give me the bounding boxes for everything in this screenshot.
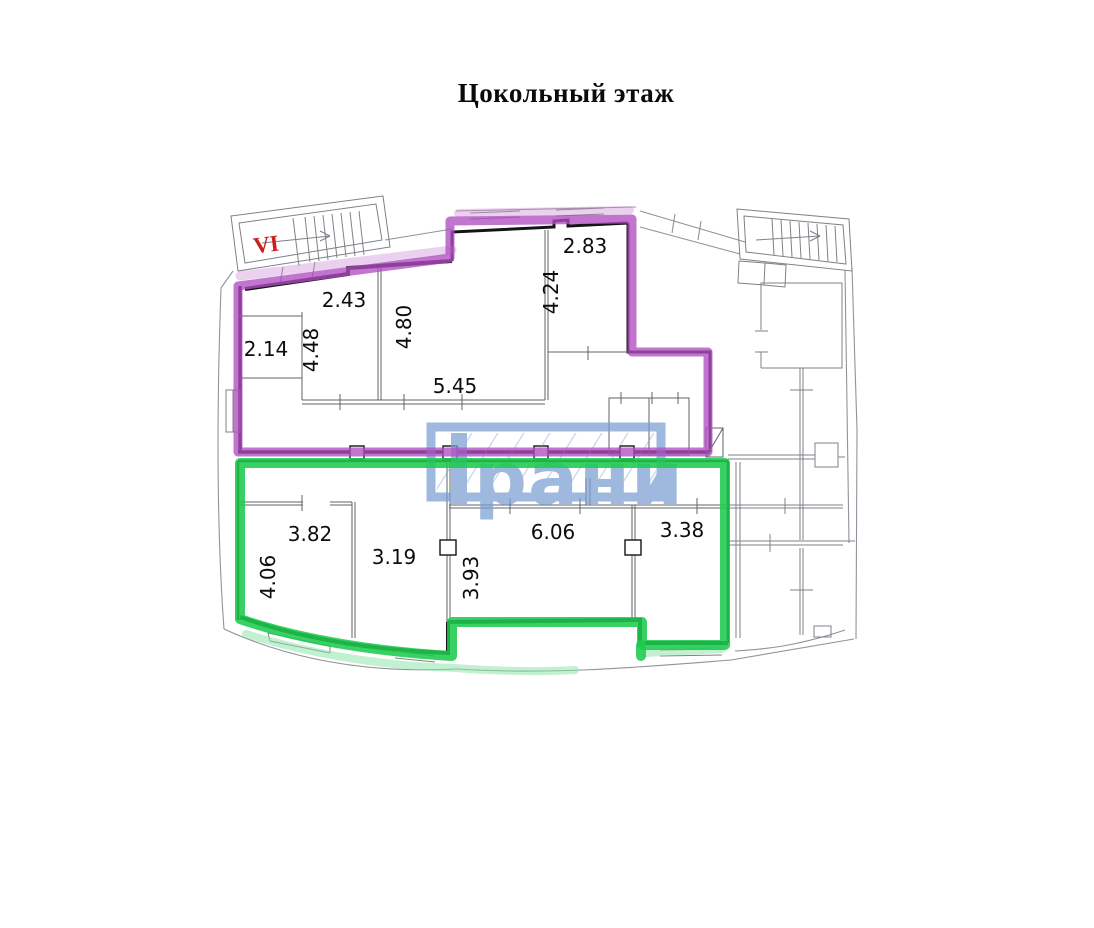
floor-plan-canvas: рани VI 2.83 4.24 2.43 4.80 4.48 2.14 5.… <box>0 0 1094 928</box>
stairwell-label: VI <box>252 231 280 259</box>
room-dimension-label: 6.06 <box>531 520 576 544</box>
room-dimension-label: 4.48 <box>299 328 323 373</box>
right-wing-structure <box>728 283 855 638</box>
room-dimension-label: 4.80 <box>392 305 416 350</box>
watermark-bar <box>451 433 467 504</box>
room-dimension-label: 2.14 <box>244 337 289 361</box>
right-staircase <box>737 209 852 287</box>
room-dimension-label: 4.06 <box>256 555 280 600</box>
floor-plan-page: { "title": "Цокольный этаж", "watermark"… <box>0 0 1094 928</box>
room-dimension-label: 4.24 <box>539 270 563 315</box>
room-dimension-label: 3.19 <box>372 545 417 569</box>
room-dimension-label: 2.83 <box>563 234 608 258</box>
room-dimension-label: 3.38 <box>660 518 705 542</box>
room-dimension-label: 2.43 <box>322 288 367 312</box>
room-dimension-label: 3.82 <box>288 522 333 546</box>
purple-outline-light-top <box>458 210 630 213</box>
room-dimension-label: 3.93 <box>459 556 483 601</box>
room-dimension-label: 5.45 <box>433 374 478 398</box>
